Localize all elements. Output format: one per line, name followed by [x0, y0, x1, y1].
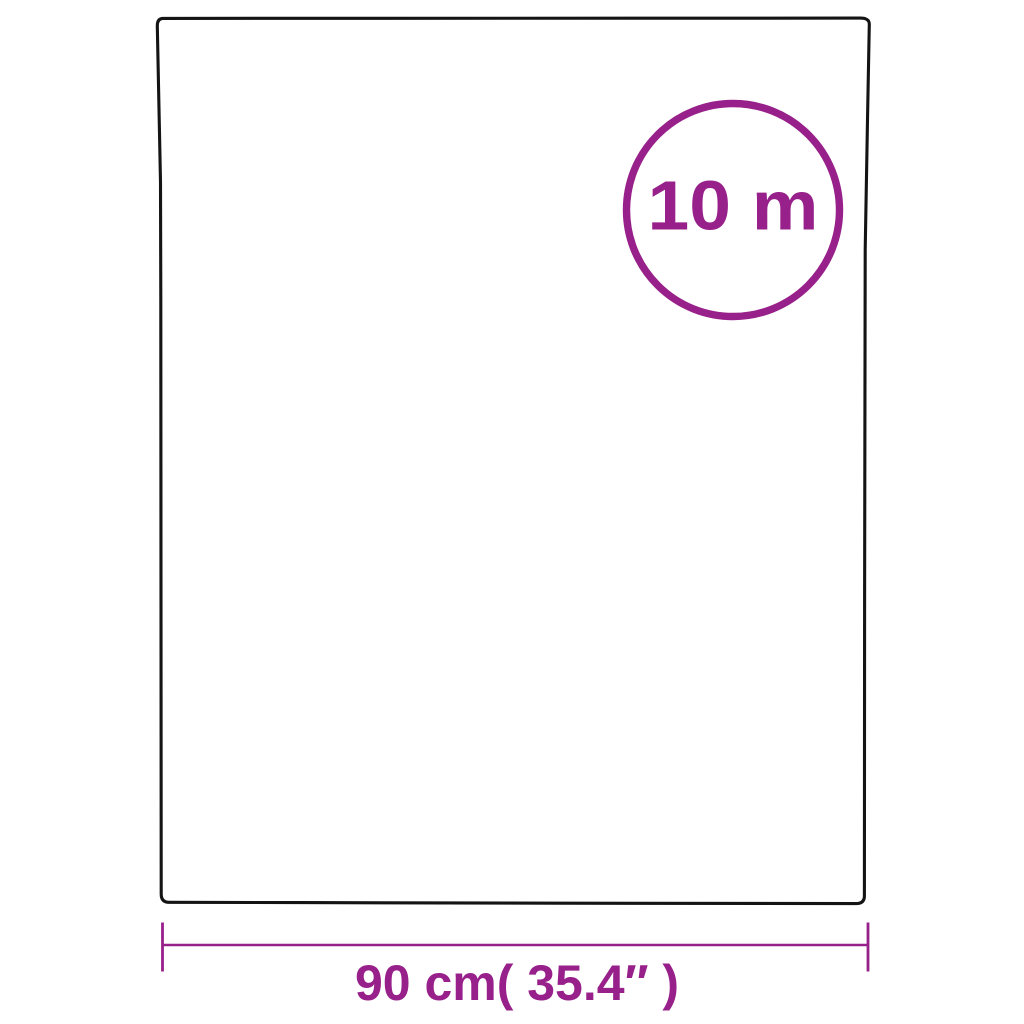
svg-text:90 cm( 35.4″ ): 90 cm( 35.4″ ) — [355, 955, 679, 1011]
svg-text:10 m: 10 m — [648, 167, 819, 245]
